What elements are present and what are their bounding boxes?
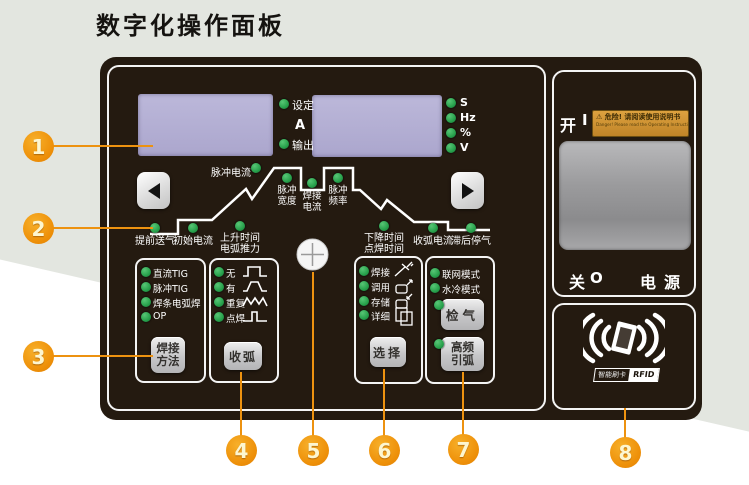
upslope-label-l1: 上升时间 bbox=[220, 233, 260, 244]
post-gas-led bbox=[466, 223, 476, 233]
unit-hz-led bbox=[446, 113, 456, 123]
unit-v-label: V bbox=[460, 141, 469, 154]
gas-check-button-label: 检气 bbox=[446, 305, 479, 324]
mains-label: 电源 bbox=[640, 269, 688, 293]
post-gas-label: 滞后停气 bbox=[449, 236, 493, 247]
torch-icon bbox=[393, 260, 415, 278]
warning-line1: ⚠ 危险! 请阅读使用说明书 bbox=[596, 113, 685, 122]
recall-led bbox=[359, 281, 369, 291]
initial-current-label: 初始电流 bbox=[171, 236, 215, 247]
initial-current-led bbox=[188, 223, 198, 233]
callout-1: 1 bbox=[23, 131, 54, 162]
pulse-tig-led bbox=[141, 282, 151, 292]
repeat-wave-icon bbox=[242, 294, 268, 308]
callout-2: 2 bbox=[23, 213, 54, 244]
leader-line-8 bbox=[624, 408, 626, 438]
leader-line-3 bbox=[53, 355, 153, 357]
crater-none-led bbox=[214, 267, 224, 277]
welding-method-button[interactable]: 焊接 方法 bbox=[151, 337, 185, 373]
set-led bbox=[279, 99, 289, 109]
dc-tig-led bbox=[141, 267, 151, 277]
crater-none-label: 无 bbox=[226, 266, 236, 280]
gas-check-button[interactable]: 检气 bbox=[441, 299, 484, 330]
crater-spot-led bbox=[214, 312, 224, 322]
crater-repeat-led bbox=[214, 297, 224, 307]
crater-button-label: 收弧 bbox=[229, 348, 257, 365]
unit-percent-label: % bbox=[460, 126, 471, 139]
unit-s-label: S bbox=[460, 96, 468, 109]
leader-line-6 bbox=[383, 369, 385, 436]
unit-percent-led bbox=[446, 128, 456, 138]
hf-arc-button[interactable]: 高频 引弧 bbox=[441, 337, 484, 371]
select-button[interactable]: 选择 bbox=[370, 337, 406, 367]
mma-label: 焊条电弧焊 bbox=[153, 296, 201, 310]
square-wave-icon bbox=[242, 264, 268, 278]
output-label: 输出 bbox=[292, 137, 314, 153]
rfid-badge: 智能刷卡 RFID bbox=[593, 368, 660, 382]
store-led bbox=[359, 296, 369, 306]
crater-current-led bbox=[428, 223, 438, 233]
leader-line-5 bbox=[312, 272, 314, 436]
op-label: OP bbox=[153, 311, 166, 322]
callout-7: 7 bbox=[448, 434, 479, 465]
spot-pulse-icon bbox=[242, 309, 268, 323]
welding-method-button-l2: 方法 bbox=[157, 354, 180, 368]
water-cool-mode-label: 水冷模式 bbox=[442, 282, 480, 296]
detail-label: 详细 bbox=[371, 309, 390, 323]
set-label: 设定 bbox=[292, 97, 314, 113]
warning-line2: Danger! Please read the Operating Instru… bbox=[596, 122, 685, 128]
unit-hz-label: Hz bbox=[460, 111, 476, 124]
callout-3: 3 bbox=[23, 341, 54, 372]
warning-label: ⚠ 危险! 请阅读使用说明书 Danger! Please read the O… bbox=[592, 110, 689, 137]
rfid-wave-card-icon bbox=[583, 311, 665, 365]
pulse-freq-led bbox=[333, 173, 343, 183]
pulse-freq-label-l1: 脉冲 bbox=[328, 185, 347, 196]
dc-tig-label: 直流TIG bbox=[153, 266, 188, 280]
op-led bbox=[141, 312, 151, 322]
callout-5: 5 bbox=[298, 435, 329, 466]
pulse-width-led bbox=[282, 173, 292, 183]
water-cool-mode-led bbox=[430, 283, 440, 293]
weld-mode-label: 焊接 bbox=[371, 265, 390, 279]
rfid-caption: 智能刷卡 bbox=[594, 369, 630, 381]
crater-have-led bbox=[214, 282, 224, 292]
gas-check-led bbox=[434, 300, 444, 310]
callout-4: 4 bbox=[226, 435, 257, 466]
trapezoid-wave-icon bbox=[242, 279, 268, 293]
hf-arc-button-l2: 引弧 bbox=[451, 353, 474, 367]
screenshot-root: 数字化操作面板 设定 A 输出 S Hz % V 脉冲电流 脉冲 宽度 焊接 电… bbox=[0, 0, 749, 485]
page-title: 数字化操作面板 bbox=[96, 6, 285, 41]
upslope-label-l2: 电弧推力 bbox=[220, 244, 260, 255]
current-display bbox=[138, 94, 273, 156]
unit-v-led bbox=[446, 143, 456, 153]
power-on-symbol: I bbox=[582, 111, 588, 129]
power-on-label: 开 bbox=[560, 112, 576, 136]
parameter-display bbox=[312, 95, 442, 157]
downslope-led bbox=[379, 221, 389, 231]
welding-method-button-l1: 焊接 bbox=[157, 341, 180, 355]
leader-line-1 bbox=[53, 145, 153, 147]
hf-arc-led bbox=[434, 339, 444, 349]
leader-line-2 bbox=[53, 227, 153, 229]
power-off-symbol: O bbox=[590, 269, 603, 287]
network-mode-led bbox=[430, 268, 440, 278]
leader-line-4 bbox=[240, 372, 242, 436]
callout-8: 8 bbox=[610, 437, 641, 468]
recall-label: 调用 bbox=[371, 280, 390, 294]
crater-have-label: 有 bbox=[226, 281, 236, 295]
leader-line-7 bbox=[462, 372, 464, 435]
hf-arc-button-l1: 高频 bbox=[451, 340, 474, 354]
store-label: 存储 bbox=[371, 295, 390, 309]
downslope-label-l1: 下降时间 bbox=[364, 233, 404, 244]
power-rocker-switch[interactable] bbox=[559, 141, 691, 250]
detail-pages-icon bbox=[393, 306, 415, 326]
select-button-label: 选择 bbox=[373, 344, 403, 361]
pulse-freq-label-l2: 频率 bbox=[328, 196, 347, 207]
upslope-led bbox=[235, 221, 245, 231]
weld-current-led bbox=[307, 178, 317, 188]
weld-mode-led bbox=[359, 266, 369, 276]
mma-led bbox=[141, 297, 151, 307]
network-mode-label: 联网模式 bbox=[442, 267, 480, 281]
downslope-label-l2: 点焊时间 bbox=[364, 244, 404, 255]
detail-led bbox=[359, 310, 369, 320]
amp-unit-label: A bbox=[295, 118, 305, 133]
rfid-tag-label: RFID bbox=[628, 369, 659, 381]
main-knob[interactable] bbox=[296, 238, 329, 271]
callout-6: 6 bbox=[369, 435, 400, 466]
crater-button[interactable]: 收弧 bbox=[224, 342, 262, 370]
power-off-label: 关 bbox=[569, 269, 585, 293]
unit-s-led bbox=[446, 98, 456, 108]
output-led bbox=[279, 139, 289, 149]
pulse-tig-label: 脉冲TIG bbox=[153, 281, 188, 295]
